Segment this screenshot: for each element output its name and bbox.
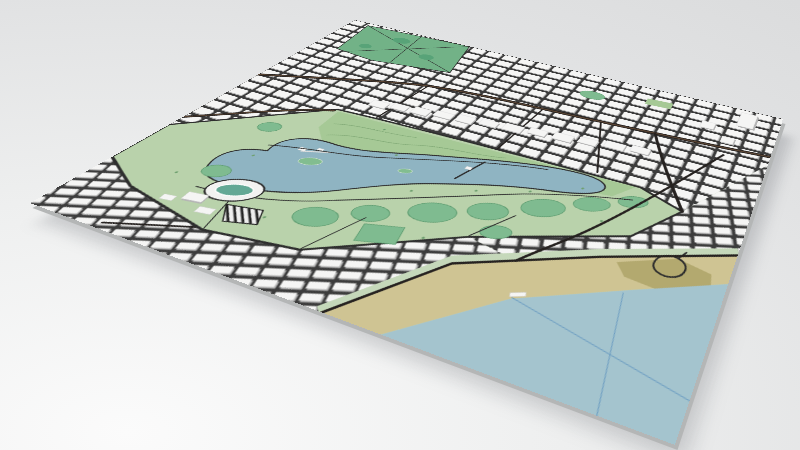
scene-background (0, 0, 800, 450)
map-board (30, 20, 783, 445)
beach-kiosk (510, 292, 527, 296)
map-plan (30, 20, 783, 445)
